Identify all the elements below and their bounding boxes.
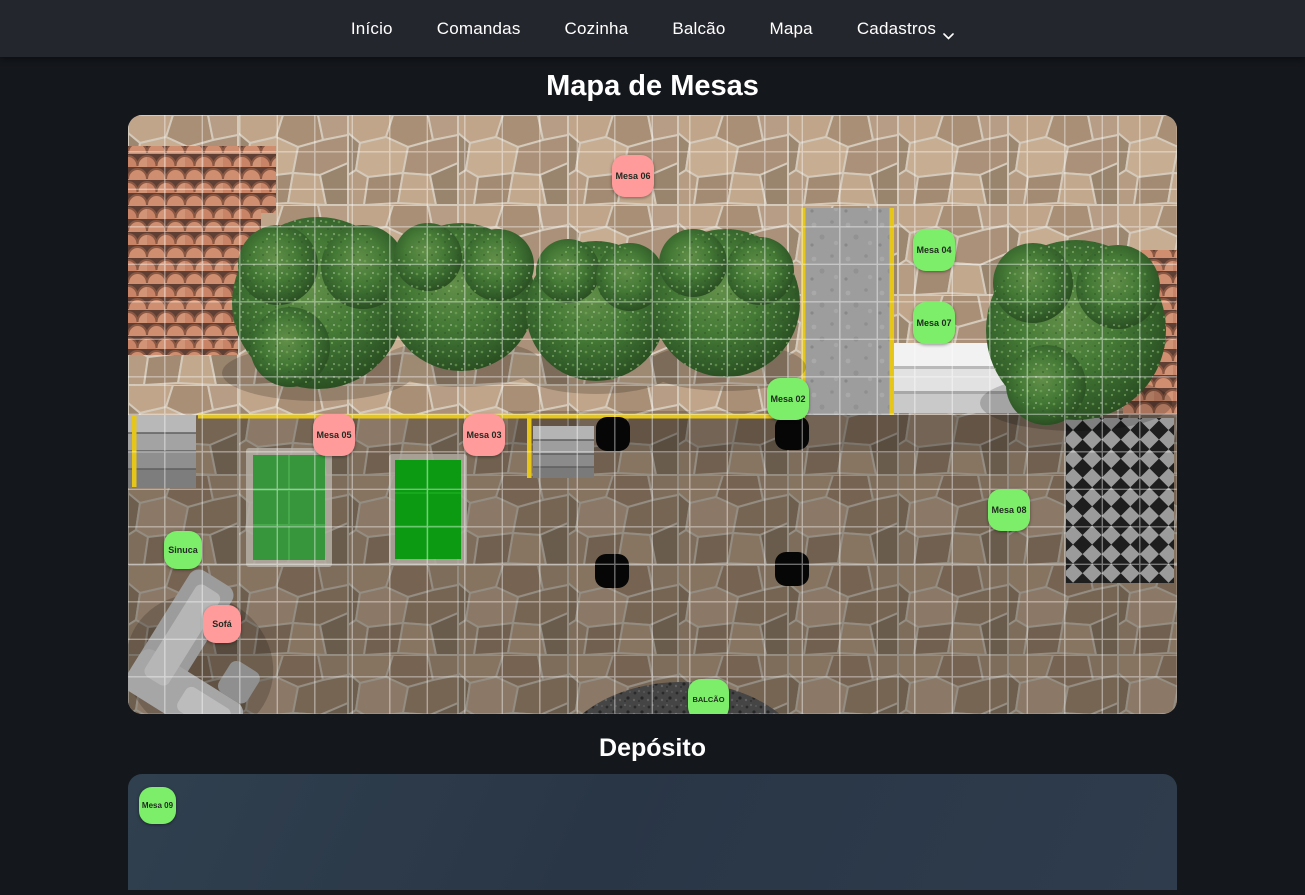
nav-item-cozinha[interactable]: Cozinha [565, 19, 629, 39]
table-marker-mesa-04[interactable]: Mesa 04 [913, 229, 955, 271]
top-navbar: Início Comandas Cozinha Balcão Mapa Cada… [0, 0, 1305, 57]
table-marker-mesa-07[interactable]: Mesa 07 [913, 302, 955, 344]
chevron-down-icon [943, 25, 954, 32]
page-title: Mapa de Mesas [0, 70, 1305, 103]
table-marker-mesa-03[interactable]: Mesa 03 [463, 414, 505, 456]
map-background-image [128, 115, 1177, 714]
nav-item-mapa[interactable]: Mapa [770, 19, 813, 39]
nav-item-inicio[interactable]: Início [351, 19, 393, 39]
table-marker-balcão[interactable]: BALCÃO [688, 679, 729, 714]
nav-item-balcao[interactable]: Balcão [672, 19, 725, 39]
table-marker-sinuca[interactable]: Sinuca [164, 531, 202, 569]
nav-item-comandas[interactable]: Comandas [437, 19, 521, 39]
table-map: Mesa 06Mesa 04Mesa 07Mesa 02Mesa 05Mesa … [128, 115, 1177, 714]
table-marker-mesa-02[interactable]: Mesa 02 [767, 378, 809, 420]
deposito-title: Depósito [0, 734, 1305, 763]
deposito-panel: Mesa 09 [128, 774, 1177, 890]
map-grid [128, 115, 1177, 714]
table-marker-sofá[interactable]: Sofá [203, 605, 241, 643]
table-marker-mesa-08[interactable]: Mesa 08 [988, 489, 1030, 531]
table-marker-mesa-05[interactable]: Mesa 05 [313, 414, 355, 456]
table-marker-mesa-09[interactable]: Mesa 09 [139, 787, 176, 824]
table-marker-mesa-06[interactable]: Mesa 06 [612, 155, 654, 197]
nav-menu-cadastros[interactable]: Cadastros [857, 19, 954, 39]
